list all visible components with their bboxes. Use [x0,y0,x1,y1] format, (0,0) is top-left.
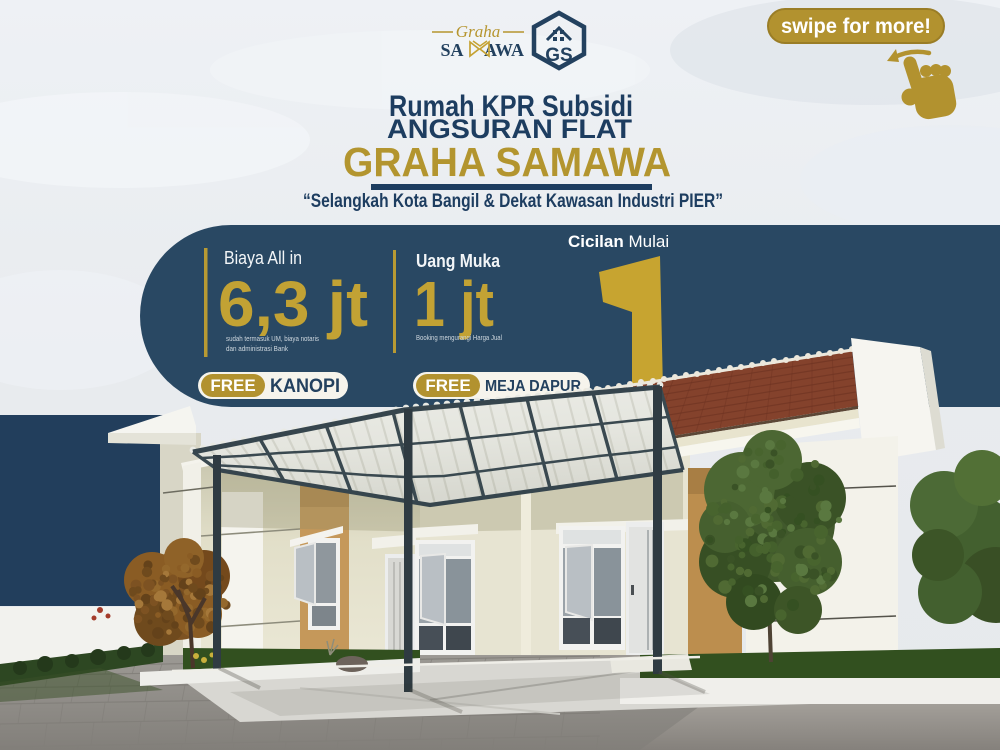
svg-text:Biaya All in: Biaya All in [224,248,302,268]
svg-text:GRAHA SAMAWA: GRAHA SAMAWA [343,139,671,185]
svg-text:Booking mengurangi Harga Jual: Booking mengurangi Harga Jual [416,333,502,342]
svg-text:sudah termasuk UM, biaya notar: sudah termasuk UM, biaya notaris [226,334,319,343]
svg-text:FREE: FREE [210,376,255,395]
svg-text:AWA: AWA [484,40,524,60]
svg-text:Cicilan Mulai: Cicilan Mulai [568,232,669,251]
svg-text:Graha: Graha [456,22,500,41]
svg-text:GS: GS [545,45,572,66]
svg-text:1 jt: 1 jt [414,268,494,340]
svg-text:SA: SA [440,40,463,60]
svg-text:“Selangkah Kota Bangil & Dekat: “Selangkah Kota Bangil & Dekat Kawasan I… [303,190,723,212]
svg-text:dan administrasi Bank: dan administrasi Bank [226,344,288,353]
svg-text:KANOPI: KANOPI [270,376,340,397]
svg-text:6,3 jt: 6,3 jt [218,268,368,340]
svg-text:FREE: FREE [425,376,470,395]
svg-text:swipe for more!: swipe for more! [781,15,931,38]
